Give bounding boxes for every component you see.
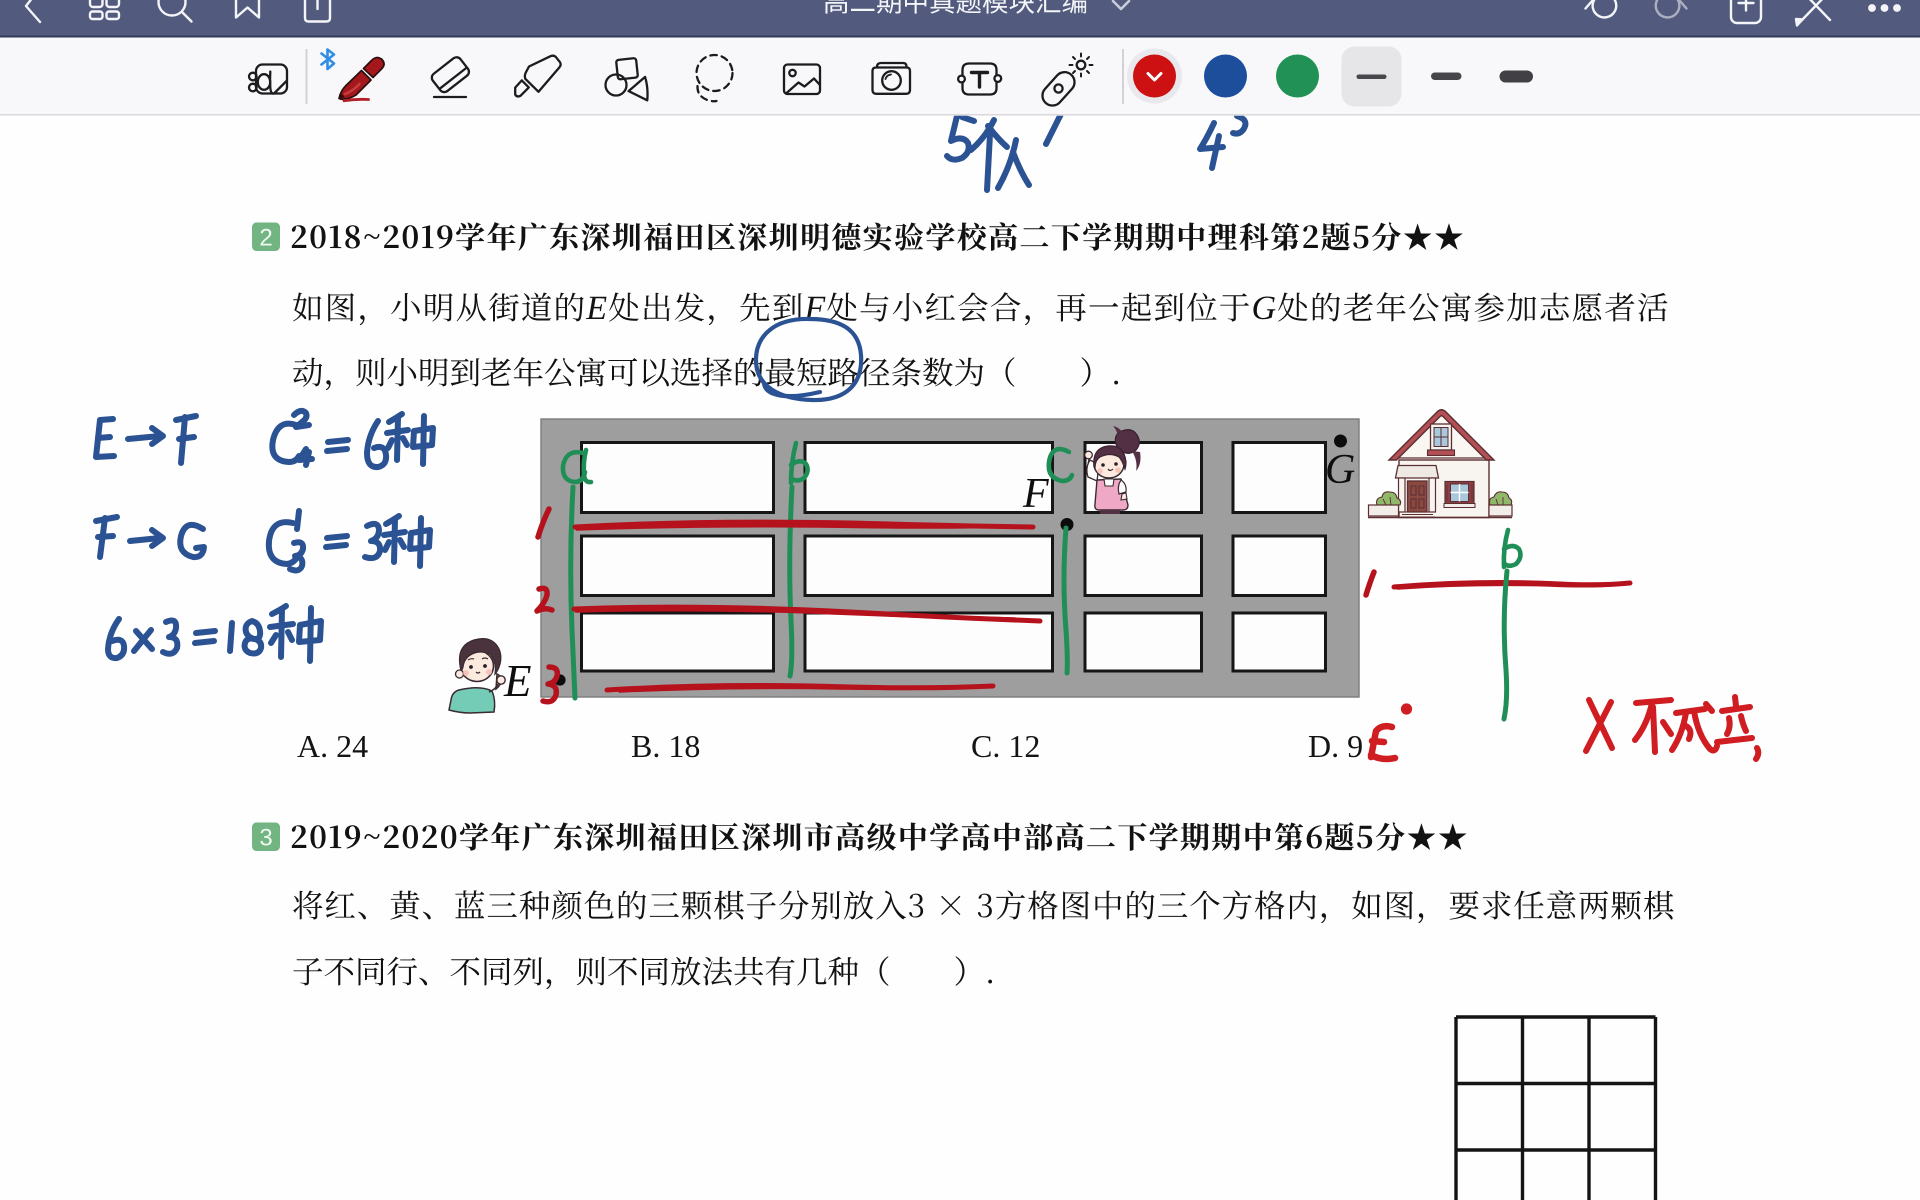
svg-text:A. 24: A. 24 xyxy=(297,728,368,764)
svg-text:D. 9: D. 9 xyxy=(1308,728,1363,764)
svg-text:2: 2 xyxy=(259,225,272,252)
svg-text:G: G xyxy=(1325,447,1355,493)
svg-text:E: E xyxy=(503,656,532,706)
svg-text:3: 3 xyxy=(259,825,272,852)
svg-text:F: F xyxy=(1022,471,1049,517)
svg-text:C. 12: C. 12 xyxy=(971,728,1040,764)
svg-text:B. 18: B. 18 xyxy=(631,728,700,764)
